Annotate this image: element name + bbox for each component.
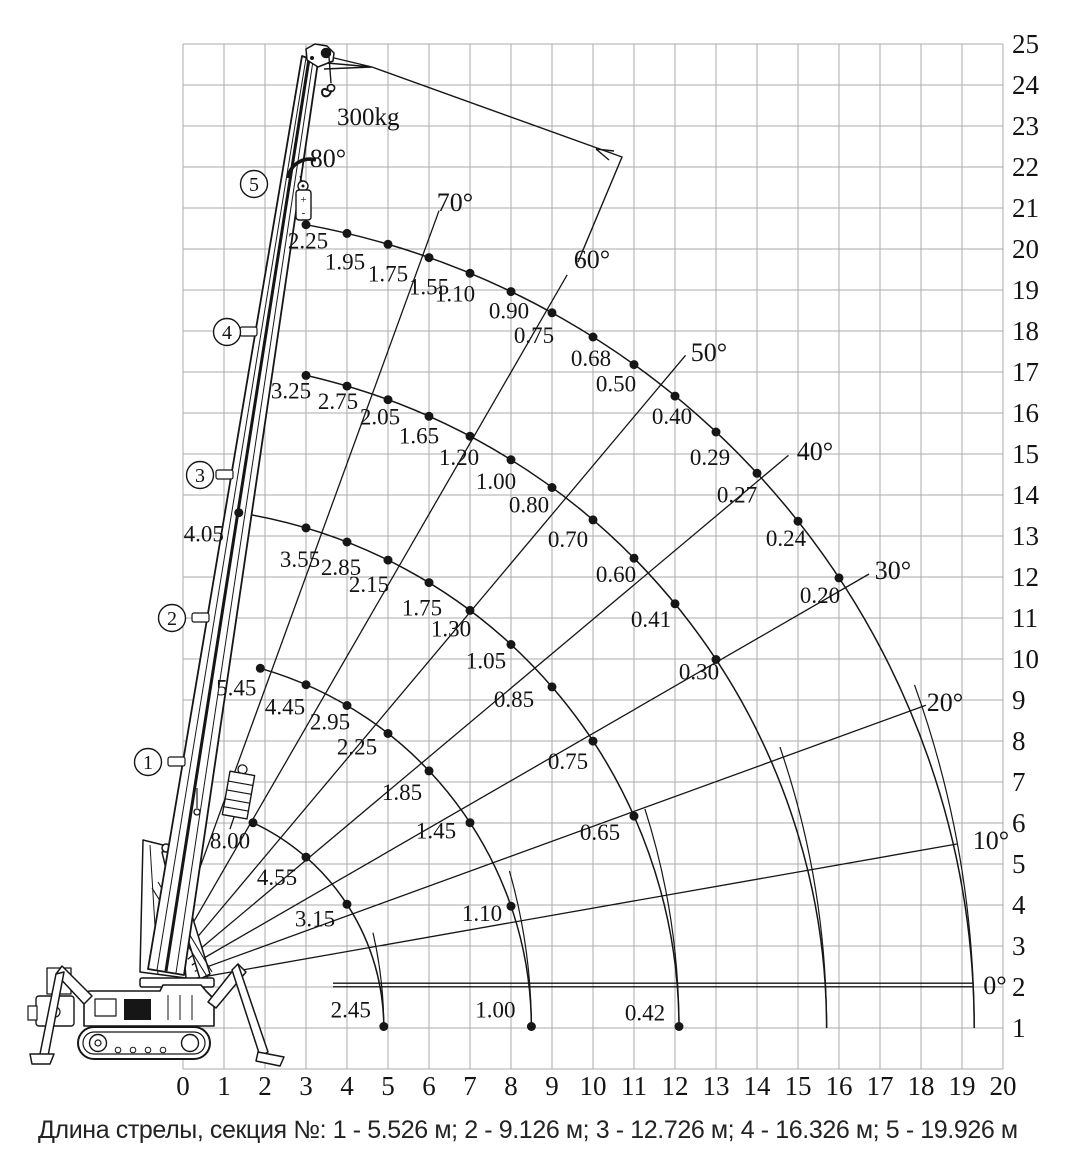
boom-joint-2 bbox=[192, 613, 209, 622]
capacity-dot bbox=[466, 432, 475, 441]
load-label: 1.65 bbox=[399, 423, 439, 448]
y-tick-label: 2 bbox=[1012, 972, 1026, 1002]
load-label: 1.10 bbox=[462, 901, 502, 926]
x-tick-label: 9 bbox=[545, 1071, 559, 1101]
section-marker-number: 2 bbox=[167, 608, 177, 630]
y-tick-label: 17 bbox=[1012, 357, 1039, 387]
boom-joint-1 bbox=[168, 757, 185, 766]
capacity-dot bbox=[302, 523, 311, 532]
load-label: 2.25 bbox=[337, 735, 377, 760]
y-tick-label: 22 bbox=[1012, 152, 1039, 182]
y-tick-label: 11 bbox=[1012, 603, 1038, 633]
ray-30deg bbox=[192, 574, 869, 965]
capacity-dot bbox=[425, 766, 434, 775]
y-tick-label: 21 bbox=[1012, 193, 1039, 223]
capacity-dot bbox=[425, 412, 434, 421]
section-marker-number: 3 bbox=[195, 465, 205, 487]
y-tick-label: 3 bbox=[1012, 931, 1026, 961]
load-label: 1.95 bbox=[325, 249, 365, 274]
x-tick-label: 17 bbox=[867, 1071, 894, 1101]
capacity-dot bbox=[589, 333, 598, 342]
x-tick-label: 12 bbox=[662, 1071, 689, 1101]
load-label: 0.29 bbox=[690, 445, 730, 470]
load-label: 0.20 bbox=[800, 583, 840, 608]
load-label: 1.00 bbox=[476, 469, 516, 494]
arc-tail-section-4 bbox=[780, 747, 827, 1028]
capacity-dot bbox=[343, 900, 352, 909]
capacity-dot bbox=[753, 469, 762, 478]
capacity-dot-end bbox=[527, 1022, 536, 1031]
x-tick-label: 16 bbox=[826, 1071, 853, 1101]
y-tick-label: 25 bbox=[1012, 29, 1039, 59]
capacity-dot bbox=[507, 640, 516, 649]
load-label: 1.10 bbox=[435, 281, 475, 306]
angle-label: 50° bbox=[691, 338, 727, 367]
load-label: 1.20 bbox=[439, 445, 479, 470]
load-label: 4.55 bbox=[257, 865, 297, 890]
y-tick-label: 16 bbox=[1012, 398, 1039, 428]
load-label-end: 2.45 bbox=[331, 998, 371, 1023]
capacity-dot bbox=[507, 902, 516, 911]
head-sheave-icon bbox=[322, 49, 331, 58]
load-label: 0.40 bbox=[652, 404, 692, 429]
load-label: 8.00 bbox=[210, 829, 250, 854]
load-label: 0.30 bbox=[679, 660, 719, 685]
capacity-dot bbox=[712, 428, 721, 437]
angle-label: 20° bbox=[927, 688, 963, 717]
capacity-dot bbox=[425, 253, 434, 262]
capacity-dot bbox=[249, 818, 258, 827]
capacity-dot bbox=[425, 578, 434, 587]
capacity-dot bbox=[548, 308, 557, 317]
x-tick-label: 3 bbox=[299, 1071, 313, 1101]
capacity-dot bbox=[548, 483, 557, 492]
load-label: 0.85 bbox=[494, 687, 534, 712]
load-label: 0.68 bbox=[571, 346, 611, 371]
load-label: 0.60 bbox=[596, 562, 636, 587]
load-label: 1.85 bbox=[382, 780, 422, 805]
capacity-dot bbox=[671, 599, 680, 608]
load-label: 1.45 bbox=[416, 819, 456, 844]
x-tick-label: 1 bbox=[217, 1071, 231, 1101]
capacity-dot bbox=[630, 812, 639, 821]
angle-label: 40° bbox=[797, 437, 833, 466]
capacity-dot bbox=[256, 664, 265, 673]
angle-label: 70° bbox=[437, 188, 473, 217]
y-tick-label: 15 bbox=[1012, 439, 1039, 469]
x-tick-label: 20 bbox=[990, 1071, 1017, 1101]
load-label: 0.50 bbox=[596, 372, 636, 397]
angle-label: 60° bbox=[574, 245, 610, 274]
load-label: 1.05 bbox=[466, 649, 506, 674]
x-tick-label: 15 bbox=[785, 1071, 812, 1101]
load-label: 3.55 bbox=[280, 547, 320, 572]
y-tick-label: 23 bbox=[1012, 111, 1039, 141]
load-label-end: 0.42 bbox=[625, 1001, 665, 1026]
capacity-dot bbox=[466, 606, 475, 615]
capacity-dot bbox=[384, 729, 393, 738]
boom-motion-arrow bbox=[324, 57, 622, 262]
hook-icon bbox=[322, 89, 331, 96]
capacity-dot bbox=[630, 360, 639, 369]
load-label: 0.41 bbox=[631, 607, 671, 632]
angle-label: 10° bbox=[973, 826, 1009, 855]
load-label: 0.75 bbox=[548, 749, 588, 774]
capacity-dot bbox=[384, 556, 393, 565]
load-label: 0.90 bbox=[489, 299, 529, 324]
capacity-dot bbox=[589, 737, 598, 746]
load-label: 4.05 bbox=[184, 522, 224, 547]
angle-label: 0° bbox=[983, 971, 1006, 1000]
capacity-dot bbox=[507, 287, 516, 296]
y-tick-label: 5 bbox=[1012, 849, 1026, 879]
y-tick-label: 6 bbox=[1012, 808, 1026, 838]
x-tick-label: 14 bbox=[744, 1071, 772, 1101]
capacity-dot bbox=[302, 853, 311, 862]
load-label: 4.45 bbox=[265, 695, 305, 720]
x-tick-label: 0 bbox=[176, 1071, 190, 1101]
capacity-dot-end bbox=[675, 1022, 684, 1031]
capacity-dot bbox=[507, 455, 516, 464]
svg-text:+: + bbox=[300, 194, 306, 206]
hook-load-label: 300kg bbox=[337, 104, 400, 131]
load-label: 3.15 bbox=[295, 906, 335, 931]
capacity-dot bbox=[794, 517, 803, 526]
y-tick-label: 7 bbox=[1012, 767, 1026, 797]
angle-label: 80° bbox=[310, 144, 346, 173]
load-label: 1.30 bbox=[431, 616, 471, 641]
load-label: 2.05 bbox=[360, 405, 400, 430]
arc-section-2 bbox=[260, 668, 531, 1028]
capacity-dot bbox=[835, 573, 844, 582]
svg-text:-: - bbox=[302, 207, 306, 219]
capacity-dot bbox=[343, 538, 352, 547]
x-tick-label: 6 bbox=[422, 1071, 436, 1101]
x-tick-label: 13 bbox=[703, 1071, 730, 1101]
y-tick-label: 18 bbox=[1012, 316, 1039, 346]
y-tick-label: 19 bbox=[1012, 275, 1039, 305]
arc-section-3 bbox=[239, 513, 679, 1028]
x-tick-label: 19 bbox=[949, 1071, 976, 1101]
section-marker-number: 1 bbox=[143, 752, 153, 774]
x-tick-label: 2 bbox=[258, 1071, 272, 1101]
y-tick-label: 20 bbox=[1012, 234, 1039, 264]
caption: Длина стрелы, секция №: 1 - 5.526 м; 2 -… bbox=[38, 1116, 1068, 1145]
x-tick-label: 18 bbox=[908, 1071, 935, 1101]
y-tick-label: 24 bbox=[1012, 70, 1040, 100]
x-tick-label: 5 bbox=[381, 1071, 395, 1101]
capacity-dot bbox=[466, 269, 475, 278]
crawler-tracks bbox=[78, 1027, 210, 1059]
x-tick-label: 11 bbox=[621, 1071, 647, 1101]
load-label: 1.75 bbox=[368, 261, 408, 286]
section-marker-number: 5 bbox=[249, 174, 259, 196]
load-chart-svg: + - bbox=[0, 0, 1080, 1115]
capacity-dot bbox=[384, 240, 393, 249]
load-label: 2.95 bbox=[310, 710, 350, 735]
x-tick-label: 8 bbox=[504, 1071, 518, 1101]
load-label: 2.15 bbox=[349, 572, 389, 597]
crane-load-chart-page: + - bbox=[0, 0, 1080, 1175]
x-tick-label: 7 bbox=[463, 1071, 477, 1101]
capacity-dot bbox=[548, 682, 557, 691]
y-tick-label: 4 bbox=[1012, 890, 1026, 920]
capacity-dot bbox=[384, 395, 393, 404]
boom-joint-3 bbox=[216, 470, 233, 479]
boom-joint-4 bbox=[240, 327, 257, 336]
y-tick-label: 13 bbox=[1012, 521, 1039, 551]
arc-tail-section-5 bbox=[915, 685, 975, 1028]
y-tick-label: 10 bbox=[1012, 644, 1039, 674]
angle-label: 30° bbox=[875, 556, 911, 585]
angle-labels: 0°10°20°30°40°50°60°70°80° bbox=[310, 144, 1009, 1000]
capacity-dot bbox=[302, 680, 311, 689]
load-label: 2.75 bbox=[318, 389, 358, 414]
capacity-dot bbox=[234, 508, 243, 517]
capacity-dot-end bbox=[379, 1022, 388, 1031]
x-tick-label: 10 bbox=[580, 1071, 607, 1101]
load-label: 0.24 bbox=[766, 526, 807, 551]
load-label: 3.25 bbox=[271, 378, 311, 403]
y-tick-label: 14 bbox=[1012, 480, 1040, 510]
load-label: 0.65 bbox=[580, 820, 620, 845]
y-tick-label: 12 bbox=[1012, 562, 1039, 592]
load-label: 0.75 bbox=[514, 323, 554, 348]
load-label: 0.80 bbox=[509, 493, 549, 518]
y-tick-label: 1 bbox=[1012, 1013, 1026, 1043]
load-label: 5.45 bbox=[216, 675, 256, 700]
capacity-dot bbox=[466, 818, 475, 827]
capacity-dot bbox=[671, 392, 680, 401]
x-tick-label: 4 bbox=[340, 1071, 354, 1101]
capacity-dot bbox=[589, 515, 598, 524]
load-label: 0.70 bbox=[548, 527, 588, 552]
load-label: 0.27 bbox=[717, 482, 757, 507]
capacity-dot bbox=[343, 229, 352, 238]
load-label-end: 1.00 bbox=[475, 998, 515, 1023]
section-marker-number: 4 bbox=[222, 322, 232, 344]
load-label: 2.25 bbox=[288, 229, 328, 254]
y-tick-label: 8 bbox=[1012, 726, 1026, 756]
ray-20deg bbox=[195, 705, 926, 971]
arc-section-4 bbox=[306, 375, 827, 1028]
outrigger-right bbox=[208, 964, 284, 1066]
y-tick-label: 9 bbox=[1012, 685, 1026, 715]
arc-tail-section-3 bbox=[645, 809, 679, 1028]
